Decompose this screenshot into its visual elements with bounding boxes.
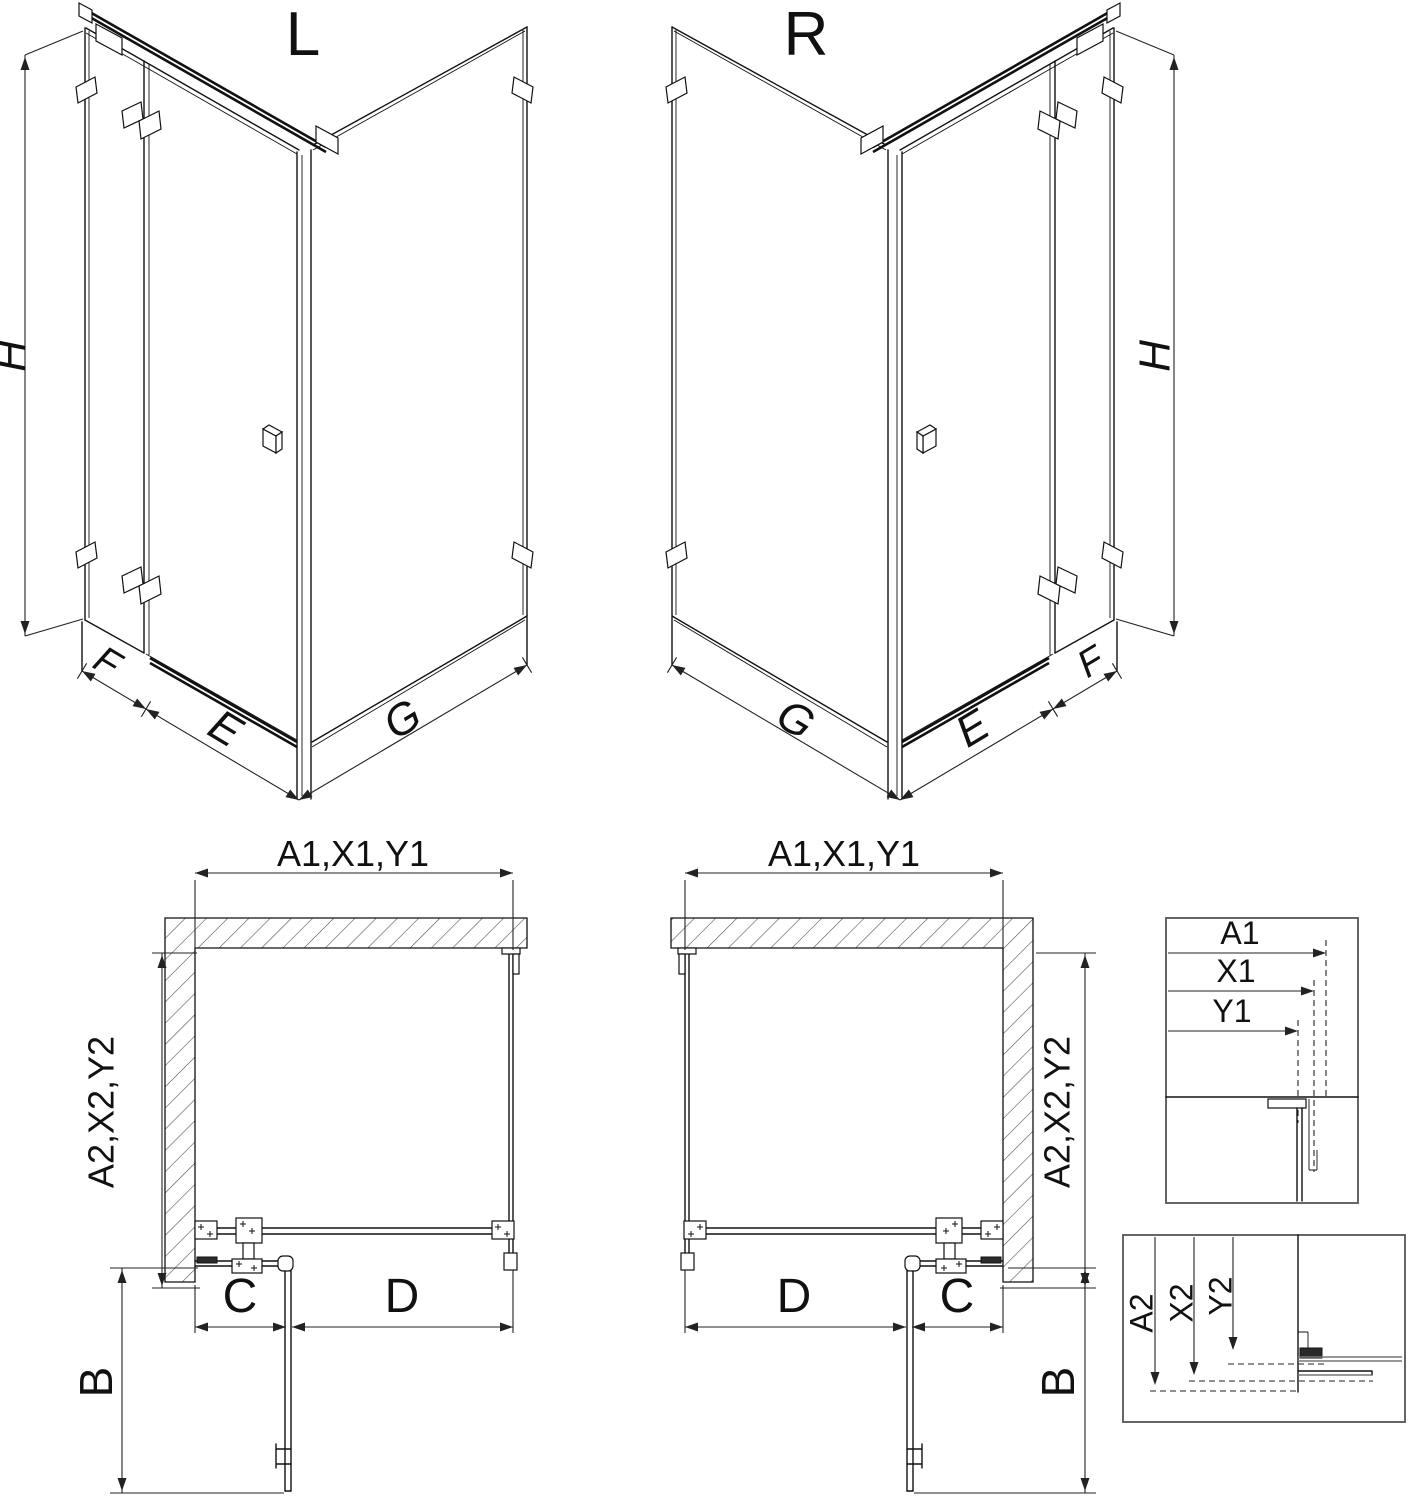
shower-enclosure-drawing: L H F E G R H F E G A1,X1,Y1 A2,X2,Y2 B — [0, 0, 1416, 1499]
plan-left-side-dim: A2,X2,Y2 — [81, 1036, 122, 1188]
iso-right-height-label: H — [1131, 340, 1180, 372]
iso-right-title: R — [784, 0, 829, 69]
iso-left-return-label: G — [375, 690, 430, 750]
plan-right-c-label: C — [940, 1270, 975, 1323]
iso-left-fixed-label: F — [86, 638, 129, 687]
iso-left-door-label: E — [200, 700, 251, 757]
detail-x2-label: X2 — [1163, 1283, 1199, 1322]
detail-box-top: A1 X1 Y1 — [1166, 915, 1358, 1203]
detail-box-bottom: A2 X2 Y2 — [1123, 1235, 1405, 1422]
iso-left-height-label: H — [0, 340, 36, 372]
detail-y1-label: Y1 — [1212, 993, 1251, 1029]
detail-a2-label: A2 — [1123, 1293, 1159, 1332]
plan-right-d-label: D — [777, 1270, 812, 1323]
iso-left-title: L — [286, 0, 320, 69]
plan-right-side-dim: A2,X2,Y2 — [1037, 1036, 1078, 1188]
plan-view-right: A1,X1,Y1 A2,X2,Y2 B D C — [671, 833, 1096, 1493]
plan-left-d-label: D — [385, 1270, 420, 1323]
plan-right-b-label: B — [1032, 1367, 1084, 1398]
detail-a1-label: A1 — [1220, 915, 1259, 951]
plan-view-left: A1,X1,Y1 A2,X2,Y2 B C D — [70, 833, 527, 1493]
iso-view-left: L H F E G — [0, 0, 533, 804]
detail-y2-label: Y2 — [1202, 1276, 1238, 1315]
plan-right-top-dim: A1,X1,Y1 — [768, 833, 920, 874]
iso-right-return-label: G — [768, 690, 823, 750]
iso-view-right: R H F E G — [666, 0, 1180, 804]
plan-left-c-label: C — [223, 1270, 258, 1323]
plan-left-top-dim: A1,X1,Y1 — [277, 833, 429, 874]
iso-right-door-label: E — [947, 700, 998, 757]
plan-left-b-label: B — [70, 1367, 122, 1398]
detail-x1-label: X1 — [1216, 953, 1255, 989]
technical-drawing-page: L H F E G R H F E G A1,X1,Y1 A2,X2,Y2 B — [0, 0, 1416, 1499]
